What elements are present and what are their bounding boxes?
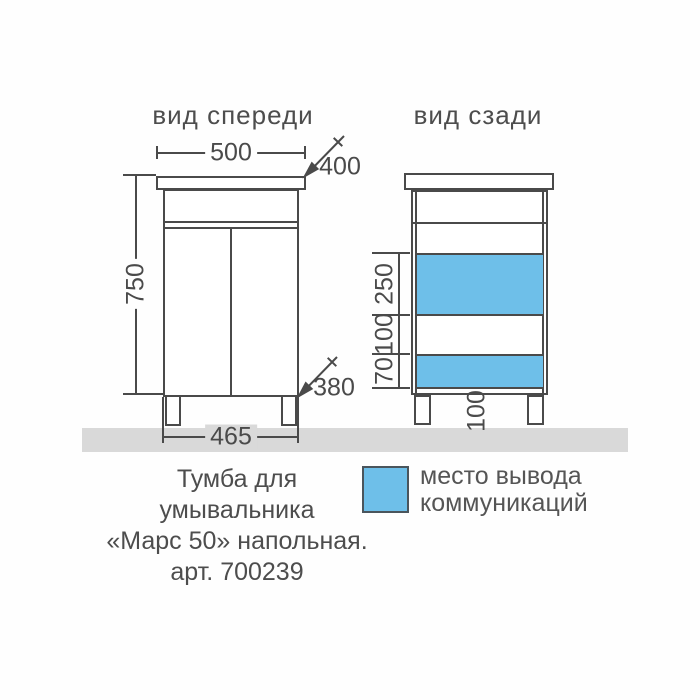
front-height-dim-ext-bottom [123,393,164,395]
front-door-gap-line [230,229,232,395]
front-leg-right [281,395,297,426]
product-spec-drawing: вид спереди 500 750 465 400 380 вид сзад… [0,0,700,700]
back-countertop [404,173,554,190]
product-caption: Тумба для умывальника «Марс 50» напольна… [106,464,367,588]
legend-color-swatch [362,466,409,513]
back-communication-zone-top [417,253,543,316]
front-height-dim-ext-top [123,174,156,176]
front-view-title: вид спереди [152,100,313,131]
legend-label-line1: место вывода [420,463,588,490]
back-view-title: вид сзади [414,100,543,131]
caption-line2: умывальника [106,495,367,526]
back-zone-dim-tick-4 [372,387,410,389]
front-bottom-width-dim-value: 465 [205,425,257,450]
back-communication-zone-bottom [417,354,543,389]
back-zone-middle-dim-value: 100 [373,313,398,355]
front-countertop [156,176,306,190]
front-bottom-depth-dim-value: 380 [313,376,355,401]
caption-line3: «Марс 50» напольная. [106,526,367,557]
front-top-width-dim-tick-right [304,146,306,159]
front-height-dim-value: 750 [124,259,149,309]
back-leg-left [414,395,431,425]
back-top-rail-line [413,222,546,224]
back-leg-right [527,395,544,425]
back-zone-top-dim-value: 250 [373,263,398,305]
front-top-width-dim-value: 500 [205,141,257,166]
legend-label: место вывода коммуникаций [420,463,588,517]
caption-article-number: арт. 700239 [106,557,367,588]
caption-line1: Тумба для [106,464,367,495]
front-leg-left [165,395,181,426]
depth-leader-arrows [0,0,700,700]
front-top-rail-line-upper [165,221,297,223]
back-zone-bottom-dim-value: 70 [373,357,398,385]
front-top-depth-dim-value: 400 [319,155,361,180]
legend-label-line2: коммуникаций [420,490,588,517]
front-top-width-dim-tick-left [156,146,158,159]
back-zone-dim-tick-1 [372,252,410,254]
back-leg-height-dim-value: 100 [465,390,490,432]
